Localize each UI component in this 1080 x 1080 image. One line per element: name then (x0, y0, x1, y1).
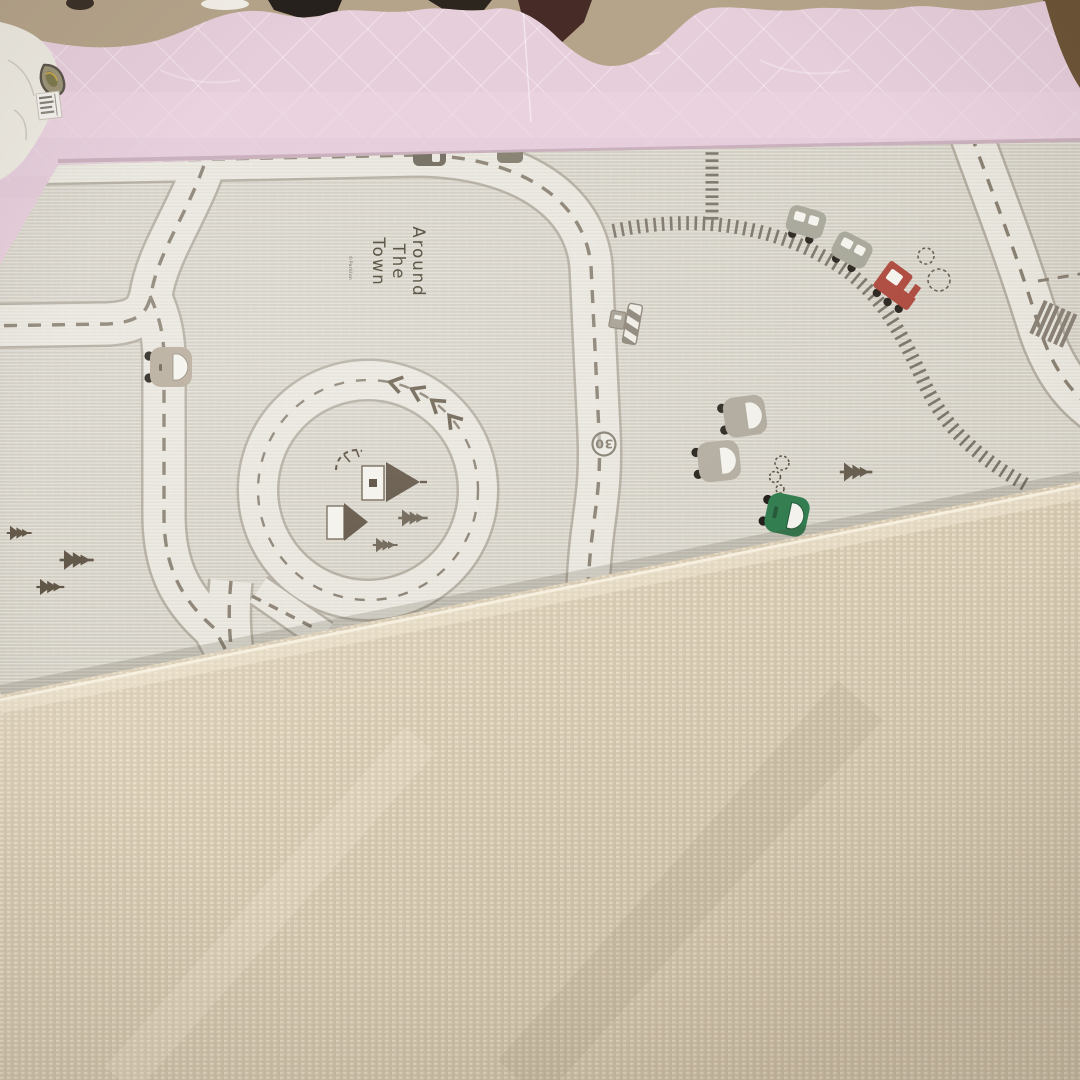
photo-vignette (0, 0, 1080, 1080)
photo-canvas: 30 (0, 0, 1080, 1080)
photo-play-mat-on-bed: 30 (0, 0, 1080, 1080)
